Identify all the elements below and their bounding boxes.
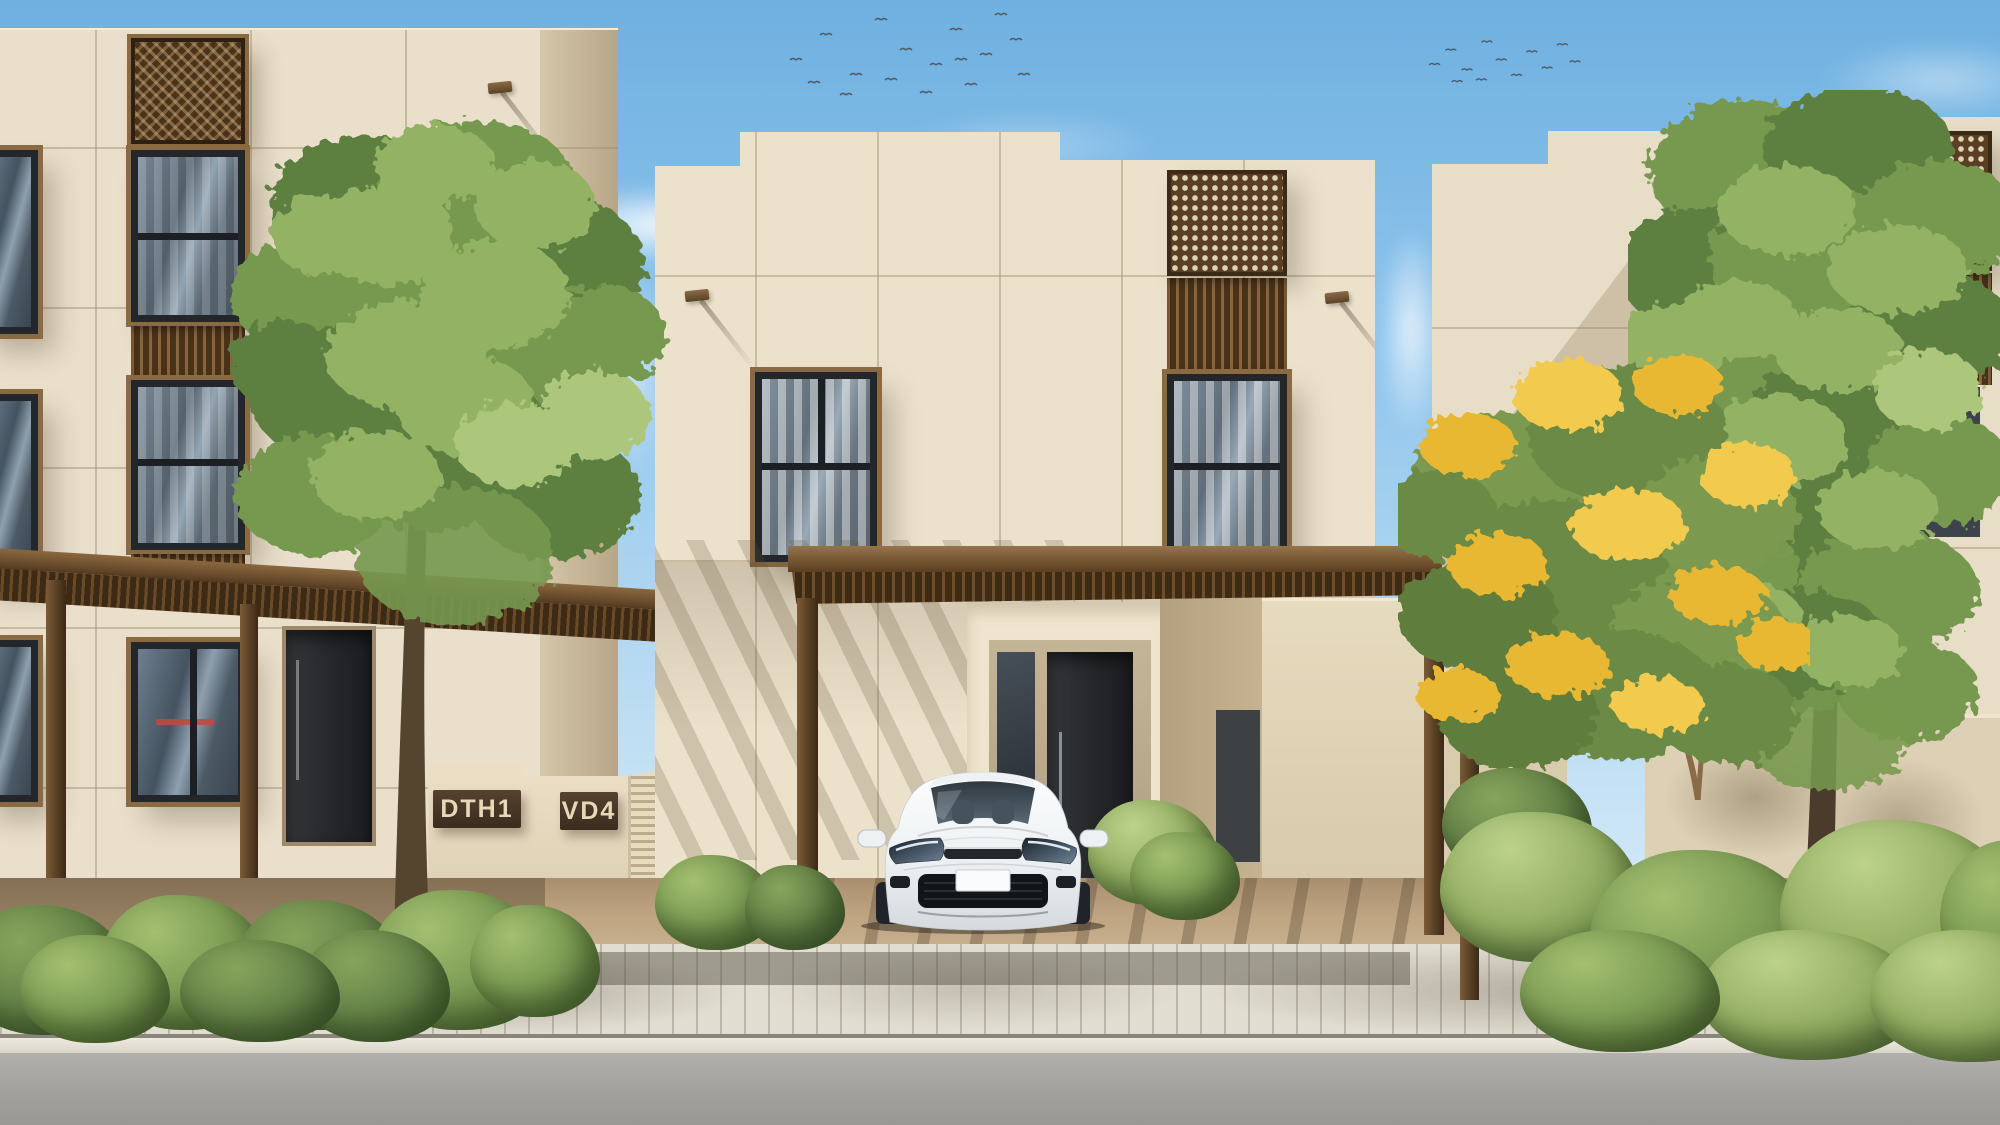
carport-pergola [788,546,1442,610]
window-mullion [1174,463,1280,470]
window [0,640,38,802]
facade-joint [95,30,97,930]
tree-canopy [230,120,665,625]
car-license-plate [956,870,1010,891]
car-mirror [1080,830,1108,847]
scene-render: DTH1 VD4 [0,0,2000,1125]
window-mullion [818,379,825,463]
tree-canopy [1398,355,1810,770]
curb [0,1038,2000,1053]
pergola-fascia [788,546,1442,572]
bird-flock [1422,28,1582,90]
slat-screen [1167,278,1287,372]
road [0,1053,2000,1125]
pergola-slats [792,572,1438,604]
window-mullion [138,233,238,240]
wall-lamp [684,289,709,302]
interior-light [156,719,214,725]
car-seat [952,800,974,824]
wall-lamp [487,81,512,94]
window [0,150,38,334]
tree-shadow [760,950,1180,1028]
wall-lamp [1324,291,1349,304]
car-fog-vent [1056,876,1076,888]
tree-flowering [1398,315,1810,800]
window-mullion [190,649,197,795]
car-grille-bar [944,848,1022,859]
window-mullion [762,463,870,470]
utility-door [1216,710,1260,862]
window [755,372,877,562]
tree-left [225,115,685,980]
bird-flock [780,2,1030,102]
window [1167,374,1287,562]
car [852,742,1114,934]
window-glass [0,157,31,327]
car-fog-vent [890,876,910,888]
car-seat [992,800,1014,824]
wall-lamp-shadow [699,299,755,368]
window-mullion [138,459,238,466]
car-mirror [858,830,886,847]
lattice-screen [1167,170,1287,276]
window-glass [0,647,31,795]
window-glass [0,401,31,573]
